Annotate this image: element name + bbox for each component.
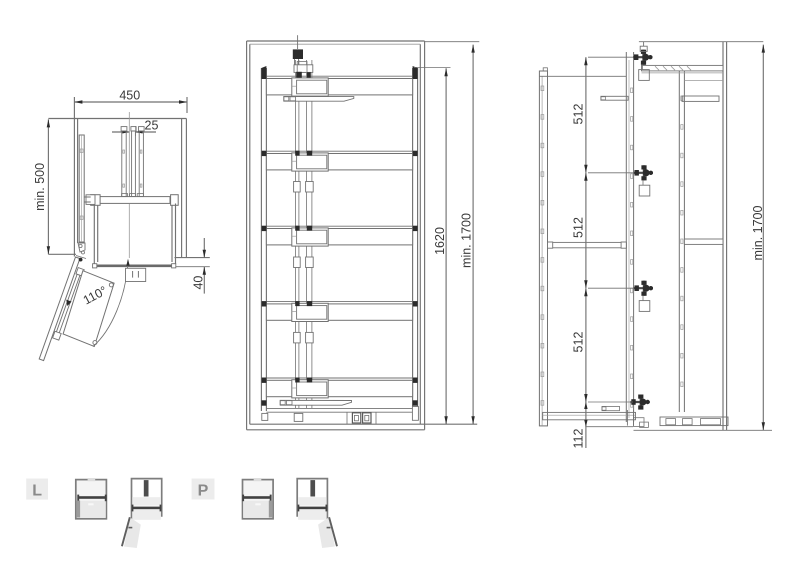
svg-text:min. 1700: min. 1700 (751, 206, 765, 261)
svg-text:512: 512 (572, 217, 586, 238)
svg-text:25: 25 (145, 119, 159, 133)
svg-text:450: 450 (119, 89, 140, 103)
svg-text:min. 500: min. 500 (33, 163, 47, 211)
svg-text:512: 512 (572, 104, 586, 125)
svg-text:P: P (198, 482, 209, 499)
svg-text:112: 112 (572, 428, 586, 448)
svg-text:40: 40 (192, 276, 206, 290)
svg-text:512: 512 (572, 332, 586, 353)
svg-text:1620: 1620 (433, 227, 447, 255)
svg-text:L: L (32, 482, 42, 499)
svg-text:min. 1700: min. 1700 (460, 213, 474, 268)
